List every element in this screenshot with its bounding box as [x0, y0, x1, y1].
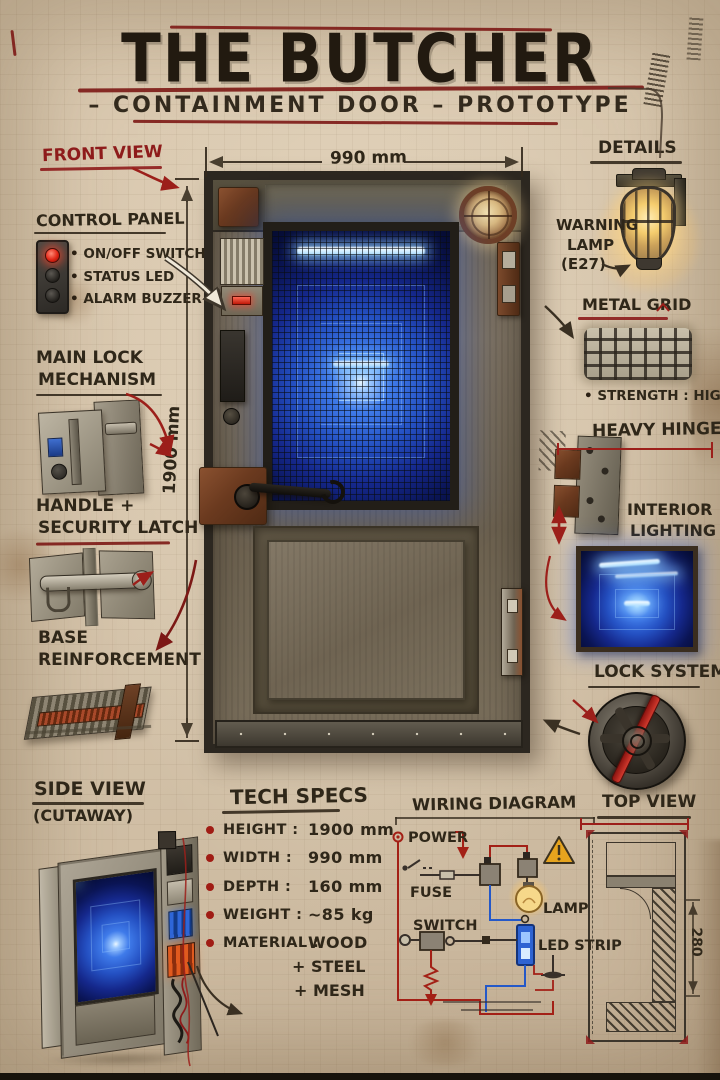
control-panel-item-3: • ALARM BUZZER: [70, 291, 202, 307]
door-junction-box: [218, 187, 259, 227]
warning-lamp-label-1: WARNING: [556, 216, 638, 234]
top-view-label: TOP VIEW: [602, 792, 696, 812]
wiring-lamp-label: LAMP: [543, 901, 589, 917]
heavy-hinge-sketch: [550, 435, 625, 537]
control-panel-sketch: [36, 240, 69, 314]
main-lock-label-2: MECHANISM: [38, 370, 156, 390]
door-panel-led: [232, 296, 251, 305]
control-panel-title: CONTROL PANEL: [36, 209, 185, 231]
spec-bullet: [206, 939, 214, 947]
door-lock-box: [199, 467, 267, 525]
side-view-rule: [32, 802, 144, 805]
spec-row-width: WIDTH : 990 mm: [206, 848, 383, 867]
door-kick-plate: [215, 720, 523, 748]
door-switch-box: [220, 330, 245, 402]
warning-lamp-label-3: (E27): [561, 255, 606, 273]
door-height-dimension: 1900 mm: [160, 404, 185, 497]
interior-lighting-label-1: INTERIOR: [627, 500, 712, 519]
door-window: [263, 222, 459, 510]
metal-grid-sketch: [584, 328, 692, 380]
base-label-1: BASE: [38, 628, 88, 648]
wiring-power-label: POWER: [408, 830, 468, 846]
interior-lighting-image: [576, 546, 698, 652]
spec-row-material: MATERIAL : WOOD: [206, 933, 368, 952]
poster-bottom-edge: [0, 1073, 720, 1080]
lock-system-label: LOCK SYSTEM: [594, 662, 720, 682]
metal-grid-label: METAL GRID: [582, 295, 691, 314]
warning-lamp-label-2: LAMP: [567, 236, 614, 254]
door-hinge-bottom: [501, 588, 523, 676]
base-reinforcement-sketch: [21, 672, 159, 759]
spec-bullet: [206, 854, 214, 862]
front-view-label: FRONT VIEW: [42, 142, 163, 166]
wiring-rule: [395, 817, 595, 819]
wiring-switch-label: SWITCH: [413, 918, 478, 934]
panel-button: [45, 288, 60, 303]
spec-bullet: [206, 911, 214, 919]
metal-grid-rule: [578, 317, 668, 320]
panel-led-on: [45, 248, 60, 263]
spec-bullet: [206, 826, 214, 834]
spec-material-cont-1: + STEEL: [292, 957, 365, 976]
lock-system-rule: [588, 686, 700, 688]
side-view-sub-label: (CUTAWAY): [33, 806, 133, 825]
main-lock-rule: [36, 394, 162, 396]
metal-grid-note: • STRENGTH : HIGH: [584, 388, 720, 404]
side-view-sketch: [32, 830, 212, 1068]
door-control-panel: [221, 286, 263, 316]
subtitle-rule: [133, 120, 558, 125]
spec-bullet: [206, 883, 214, 891]
wiring-fuse-label: FUSE: [410, 885, 452, 901]
door-hinge-top: [497, 242, 520, 316]
door-width-dimension: 990 mm: [330, 147, 407, 168]
door-warning-lamp: [459, 186, 517, 244]
handle-label-2: SECURITY LATCH: [38, 518, 198, 538]
tech-specs-title: TECH SPECS: [230, 783, 368, 809]
control-panel-rule: [34, 232, 166, 234]
lock-wheel-sketch: [586, 692, 686, 788]
spec-row-depth: DEPTH : 160 mm: [206, 877, 383, 896]
details-rule: [590, 161, 682, 164]
containment-door: [204, 171, 530, 753]
spec-row-weight: WEIGHT : ~85 kg: [206, 905, 374, 924]
spec-row-height: HEIGHT : 1900 mm: [206, 820, 394, 839]
top-view-depth-dimension: 280: [688, 922, 704, 962]
front-view-rule: [40, 166, 162, 171]
details-label: DETAILS: [598, 138, 677, 158]
side-view-label: SIDE VIEW: [34, 778, 146, 800]
panel-button: [45, 268, 60, 283]
wiring-diagram-title: WIRING DIAGRAM: [412, 793, 577, 815]
handle-sketch: [27, 546, 158, 628]
base-label-2: REINFORCEMENT: [38, 650, 201, 670]
spec-material-cont-2: + MESH: [294, 981, 365, 1000]
top-view-rule: [597, 816, 691, 819]
handle-label-1: HANDLE +: [36, 496, 134, 516]
blueprint-poster: THE BUTCHER – CONTAINMENT DOOR – PROTOTY…: [0, 0, 720, 1080]
door-vent-plate: [220, 238, 264, 285]
control-panel-item-2: • STATUS LED: [70, 269, 174, 285]
page-subtitle: – CONTAINMENT DOOR – PROTOTYPE: [0, 93, 720, 118]
main-lock-label-1: MAIN LOCK: [36, 348, 143, 368]
wiring-led-strip-label: LED STRIP: [538, 938, 622, 954]
interior-lighting-label-2: LIGHTING: [630, 521, 716, 540]
main-lock-sketch: [38, 399, 147, 500]
control-panel-item-1: • ON/OFF SWITCH: [70, 246, 206, 262]
tech-specs-rule: [222, 809, 340, 814]
door-lower-panel: [253, 526, 479, 714]
door-knob-small: [223, 408, 240, 425]
